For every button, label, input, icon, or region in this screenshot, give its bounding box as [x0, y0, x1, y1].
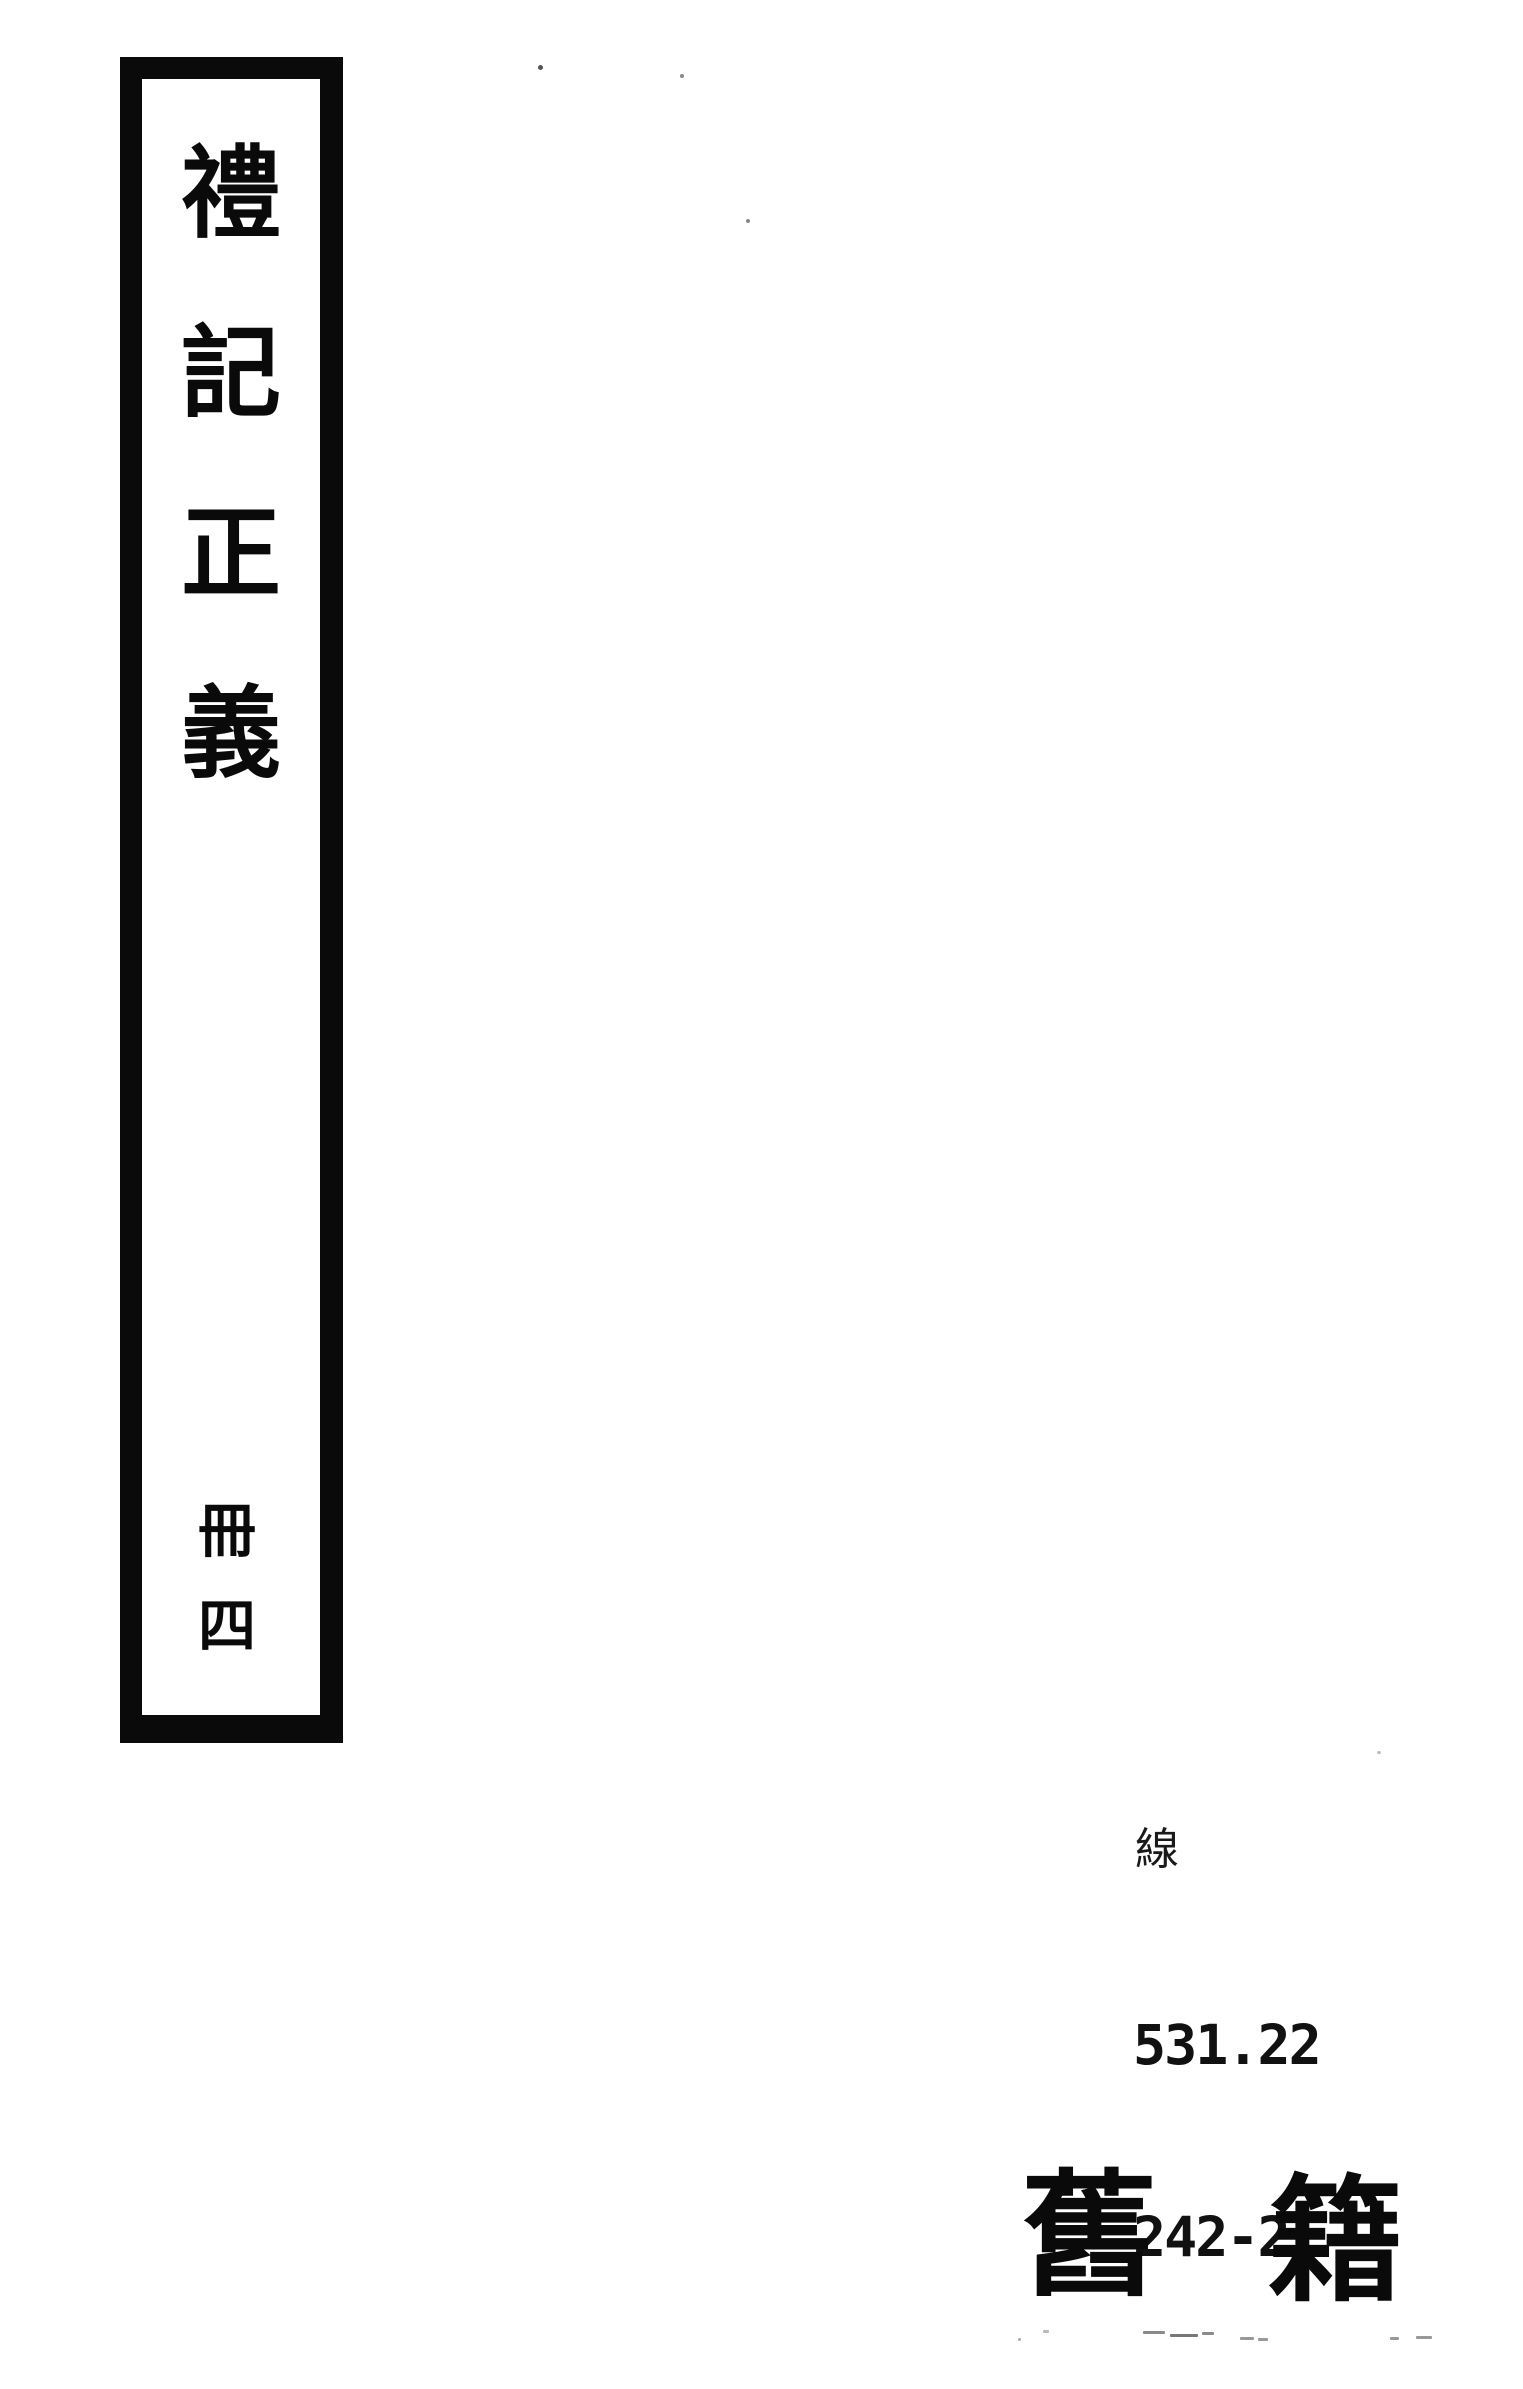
spine-title: 禮 記 正 義: [142, 141, 320, 786]
scan-noise-dash: [1143, 2331, 1165, 2334]
spine-title-char: 禮: [181, 141, 281, 246]
scan-noise-speck: [1377, 1751, 1381, 1754]
spine-title-char: 正: [181, 501, 281, 606]
scan-noise-dash: [1416, 2336, 1432, 2339]
scan-noise-speck: [538, 65, 543, 70]
collection-stamp-char: 籍: [1268, 2171, 1404, 2311]
spine-label-box: 禮 記 正 義 冊 四: [120, 57, 343, 1743]
scan-noise-dash: [1240, 2337, 1254, 2340]
scan-noise-speck: [746, 219, 750, 223]
spine-title-char: 記: [181, 321, 281, 426]
spine-volume-marker: 冊 四: [138, 1500, 316, 1658]
scan-noise-dash: [1043, 2330, 1049, 2333]
scan-noise-speck: [680, 74, 684, 78]
scan-noise-dash: [1258, 2338, 1268, 2341]
scanned-book-cover: 禮 記 正 義 冊 四 線 531.22 242-2 25 v. 4 舊 籍: [0, 0, 1523, 2389]
collection-stamp-char: 舊: [1021, 2166, 1157, 2306]
spine-volume-char: 冊: [198, 1500, 256, 1563]
call-number-line: 531.22: [1133, 2013, 1320, 2077]
scan-noise-dash: [1170, 2334, 1198, 2337]
scan-noise-dash: [1202, 2332, 1214, 2335]
scan-noise-dash: [1390, 2337, 1399, 2340]
spine-title-char: 義: [181, 681, 281, 786]
scan-noise-speck: [1018, 2338, 1021, 2341]
spine-volume-char: 四: [198, 1595, 256, 1658]
binding-marker: 線: [1135, 1826, 1179, 1874]
